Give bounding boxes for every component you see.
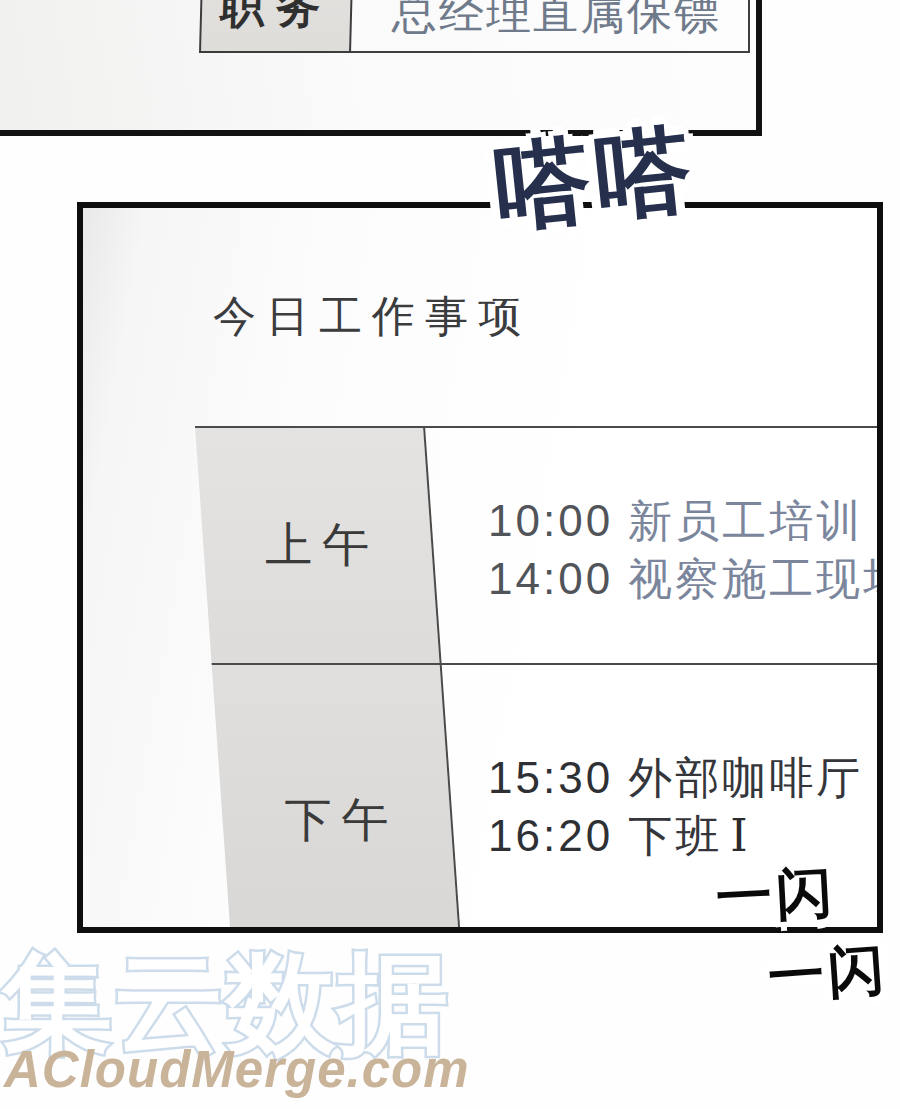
text-cursor-icon: I bbox=[730, 810, 750, 861]
entry-time: 14:00 bbox=[488, 554, 613, 603]
profile-label-cell: 职务 bbox=[199, 0, 354, 53]
entry-time: 16:20 bbox=[488, 811, 613, 860]
schedule-entry: 10:00 新员工培训 bbox=[488, 492, 883, 550]
schedule-title: 今日工作事项 bbox=[213, 288, 531, 346]
entry-activity: 外部咖啡厅 bbox=[628, 753, 863, 802]
morning-period-label: 上午 bbox=[255, 514, 379, 577]
afternoon-header-cell: 下午 bbox=[212, 665, 461, 933]
morning-entries: 10:00 新员工培训 14:00 视察施工现场 bbox=[488, 492, 883, 608]
entry-activity: 新员工培训 bbox=[628, 496, 863, 545]
entry-activity: 下班 bbox=[628, 811, 722, 860]
afternoon-period-label: 下午 bbox=[275, 789, 399, 852]
profile-label: 职务 bbox=[201, 0, 351, 37]
morning-header-cell: 上午 bbox=[195, 428, 441, 663]
profile-table-divider bbox=[351, 51, 750, 53]
schedule-entry: 14:00 视察施工现场 bbox=[488, 550, 883, 608]
entry-activity: 视察施工现场 bbox=[628, 554, 883, 603]
schedule-comic-panel: 今日工作事项 上午 下午 10:00 新员工培训 14:00 视察施工现场 bbox=[77, 202, 883, 933]
entry-time: 15:30 bbox=[488, 753, 613, 802]
watermark-url: ACloudMerge.com bbox=[4, 1040, 470, 1099]
profile-value: 总经理直属保镖 bbox=[392, 0, 721, 43]
schedule-entry: 15:30 外部咖啡厅 bbox=[488, 749, 863, 807]
sfx-tap-tap: 嗒嗒 bbox=[489, 106, 703, 254]
sfx-flash-inside-panel: 一闪 bbox=[714, 855, 838, 937]
profile-table-right-border bbox=[748, 0, 750, 53]
afternoon-entries: 15:30 外部咖啡厅 16:20 下班I bbox=[488, 749, 863, 865]
entry-time: 10:00 bbox=[488, 496, 613, 545]
comic-page: 职务 总经理直属保镖 嗒嗒 今日工作事项 上午 下午 10:00 新员工培 bbox=[0, 0, 900, 1109]
sfx-flash-below-panel: 一闪 bbox=[765, 932, 890, 1016]
